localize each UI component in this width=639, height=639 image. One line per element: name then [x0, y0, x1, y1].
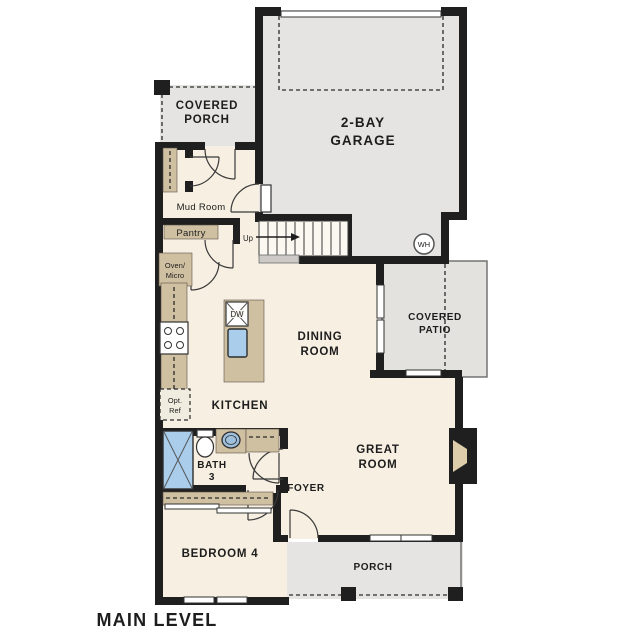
garage-door: [281, 11, 441, 17]
bedroom-window-left: [184, 597, 214, 603]
floor-plan-page: COVERED PORCH 2-BAY GARAGE Mud Room Pant…: [0, 0, 639, 639]
patio-window: [406, 370, 441, 376]
pantry-top-wall: [159, 218, 240, 225]
garage-top-left-block: [255, 7, 281, 16]
up-label: Up: [243, 234, 254, 243]
linen-closet: [246, 429, 279, 452]
covered-porch-label-2: PORCH: [184, 114, 230, 126]
kitchen-sink: [228, 329, 247, 357]
dining-room-label-1: DINING: [297, 331, 342, 343]
porch-post-left: [341, 587, 356, 601]
patio-left-wall-bottom-stub: [376, 353, 384, 378]
water-heater-label: WH: [418, 240, 431, 249]
covered-patio-label-1: COVERED: [408, 312, 462, 323]
bath-sink: [222, 432, 240, 448]
great-room-window-left: [370, 535, 401, 541]
foyer-label: FOYER: [287, 483, 325, 494]
garage-bottom-wall: [299, 256, 449, 264]
foyer-left-wall: [273, 493, 281, 542]
porch-post-right: [448, 587, 463, 601]
garage-left-wall-upper: [255, 10, 263, 184]
garage-label-2: GARAGE: [330, 133, 395, 148]
patio-slider-door-top: [377, 285, 384, 318]
toilet-bowl: [197, 437, 214, 457]
garage-right-wall: [459, 7, 467, 220]
bath-label-2: 3: [209, 472, 215, 483]
pantry-right-wall: [233, 218, 240, 244]
floor-plan-svg: COVERED PORCH 2-BAY GARAGE Mud Room Pant…: [0, 0, 639, 639]
pantry-label: Pantry: [176, 228, 205, 239]
range: [160, 322, 188, 354]
bath-label-1: BATH: [197, 460, 226, 471]
toilet-tank: [197, 430, 213, 437]
opt-ref-label-2: Ref: [169, 406, 182, 415]
mud-room-label: Mud Room: [177, 202, 226, 213]
patio-left-wall-top-stub: [376, 263, 384, 285]
range-body: [160, 322, 188, 354]
foyer-bottom-wall-stub: [281, 535, 288, 542]
kitchen-label: KITCHEN: [212, 400, 269, 412]
bedroom-label: BEDROOM 4: [182, 548, 259, 560]
garage-entry-door-leaf: [261, 185, 271, 212]
oven-micro-label-2: Micro: [166, 271, 185, 280]
stairs-top-wall: [255, 214, 352, 221]
closet-slider-door: [165, 504, 219, 509]
opt-ref-label-1: Opt.: [168, 396, 182, 405]
dining-room-label-2: ROOM: [301, 346, 340, 358]
dishwasher-label: DW: [231, 310, 245, 319]
garage-label-1: 2-BAY: [341, 115, 385, 130]
oven-micro-label-1: Oven/: [165, 261, 186, 270]
porch-label: PORCH: [353, 562, 392, 573]
stair-landing: [259, 255, 299, 263]
great-room-label-1: GREAT: [356, 444, 399, 456]
closet-slider-door: [217, 508, 271, 513]
covered-porch-label-1: COVERED: [176, 100, 238, 112]
main-level-title: MAIN LEVEL: [96, 610, 217, 630]
great-room-window-right: [401, 535, 432, 541]
bedroom-window-right: [217, 597, 247, 603]
porch-corner-post: [154, 80, 170, 95]
covered-patio-label-2: PATIO: [419, 325, 451, 336]
bath-right-wall-upper: [280, 436, 288, 449]
great-room-label-2: ROOM: [359, 459, 398, 471]
patio-slider-door-bottom: [377, 320, 384, 353]
